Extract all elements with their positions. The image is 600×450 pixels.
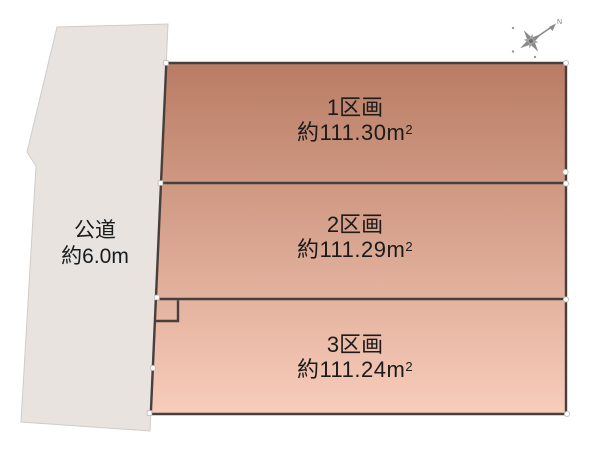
parcel-3-area: 約111.24m2 [155,357,555,382]
parcel-2-name: 2区画 [155,212,555,237]
parcel-3-label: 3区画 約111.24m2 [155,332,555,382]
parcel-1-label: 1区画 約111.30m2 [155,95,555,145]
compass-rose-icon: N [512,19,562,59]
parcel-2-label: 2区画 約111.29m2 [155,212,555,262]
parcel-2-area: 約111.29m2 [155,237,555,262]
compass-north-label: N [557,19,562,26]
parcel-1-area: 約111.30m2 [155,120,555,145]
parcel-1-name: 1区画 [155,95,555,120]
road-label: 公道 約6.0m [35,218,155,270]
road-width: 約6.0m [35,244,155,270]
parcel-3-name: 3区画 [155,332,555,357]
road-name: 公道 [35,218,155,244]
plot-diagram-canvas: N 公道 約6.0m 1区画 約111.30m2 2区画 約111.29m2 3… [0,0,600,450]
